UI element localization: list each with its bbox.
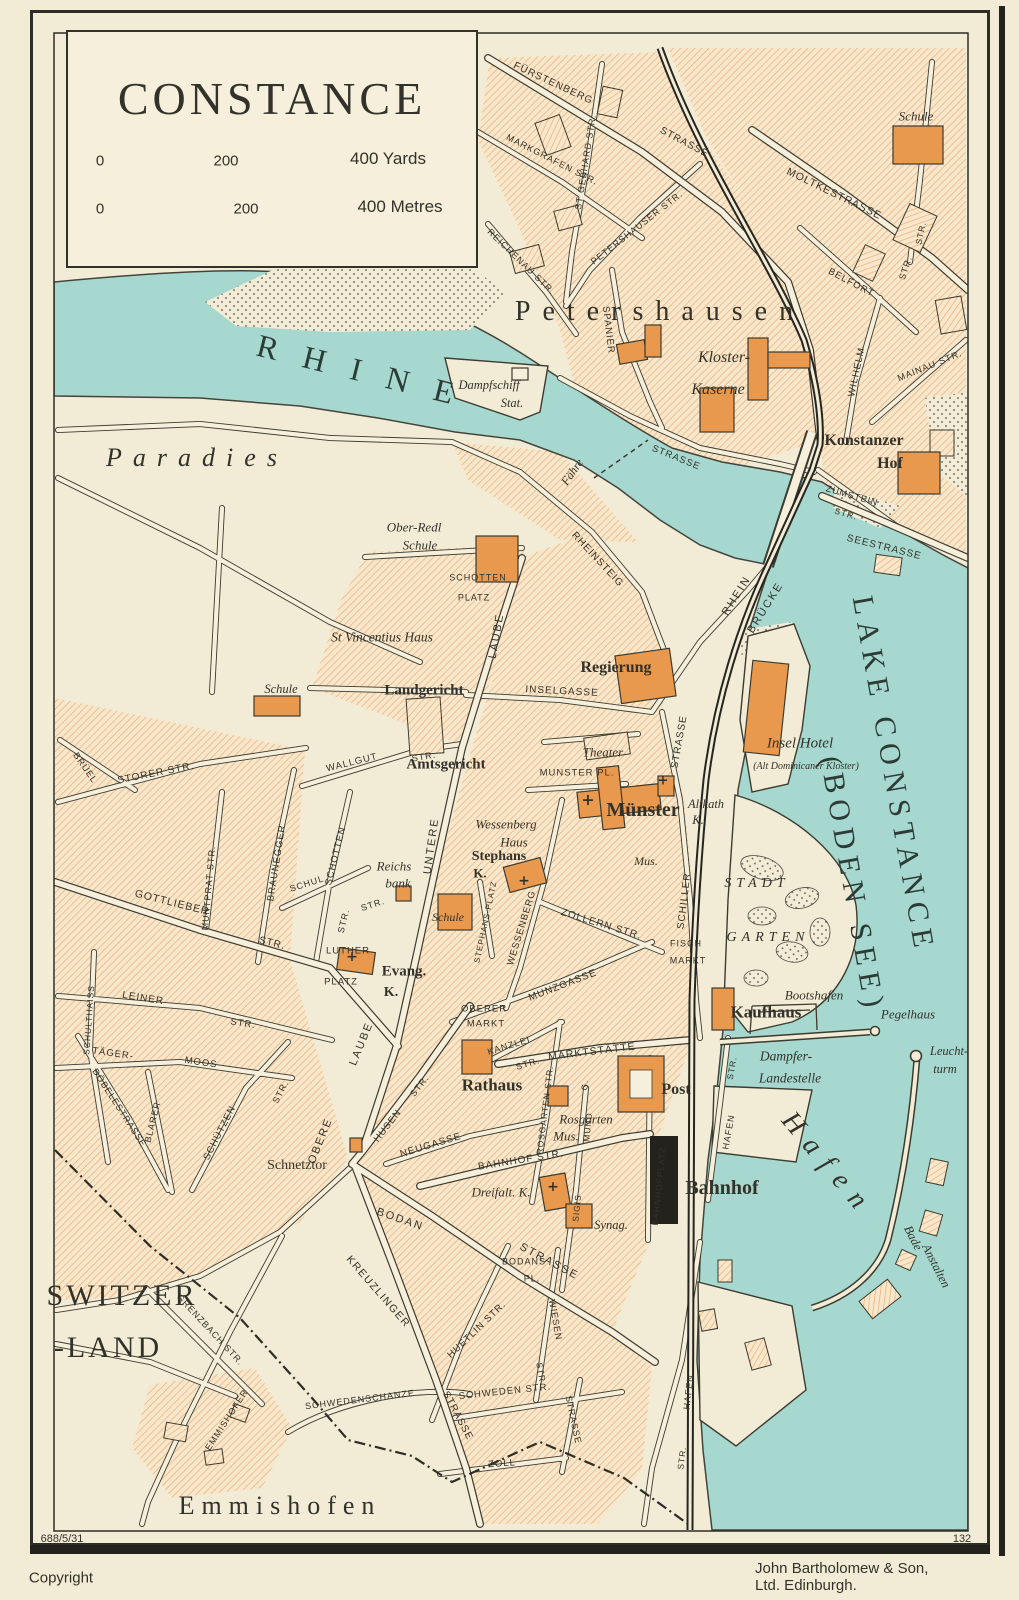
konstanzer-hof-building (898, 452, 940, 494)
regierung-building (615, 648, 676, 703)
bottom-border-band (30, 1545, 990, 1554)
sheet-number: 688/5/31 (41, 1533, 84, 1545)
page-number: 132 (953, 1533, 971, 1545)
rathaus-building (462, 1040, 492, 1074)
rosgarten-museum-building (548, 1086, 568, 1106)
steamer-pier (712, 1086, 812, 1162)
reichsbank-building (396, 886, 411, 901)
scale-yards-zero: 0 (96, 153, 104, 170)
altkath-church-building (658, 776, 674, 796)
ober-redl-schule-building (476, 536, 518, 582)
scale-yards-mid: 200 (213, 153, 238, 170)
synagogue-building (566, 1204, 592, 1228)
map-of-constance: CONSTANCE 0 200 400 Yards 0 200 400 Metr… (0, 0, 1019, 1600)
bahnhof-building (650, 1136, 678, 1224)
kaserne-building-2 (768, 352, 810, 368)
schnetztor-building (350, 1138, 362, 1152)
kaserne-building-1 (748, 338, 768, 400)
kaserne-building-4 (616, 340, 647, 365)
map-title: CONSTANCE (68, 72, 476, 125)
schule-west-building (254, 696, 300, 716)
scale-yards-end: 400 Yards (350, 149, 426, 169)
scale-metres-mid: 200 (233, 201, 258, 218)
scale-metres-zero: 0 (96, 201, 104, 218)
copyright-note: Copyright (29, 1570, 93, 1587)
evang-church-building (337, 948, 376, 975)
publisher-imprint: John Bartholomew & Son, Ltd. Edinburgh. (755, 1560, 931, 1594)
kaserne-building-5 (645, 325, 661, 357)
schule-ne-building (893, 126, 943, 164)
dampfschiff-station-building (512, 368, 528, 380)
scale-metres-end: 400 Metres (357, 197, 442, 217)
kaufhaus-building (712, 988, 734, 1030)
right-border-band (999, 6, 1005, 1556)
schule-stephans-building (438, 894, 472, 930)
kaserne-building-3 (700, 388, 734, 432)
